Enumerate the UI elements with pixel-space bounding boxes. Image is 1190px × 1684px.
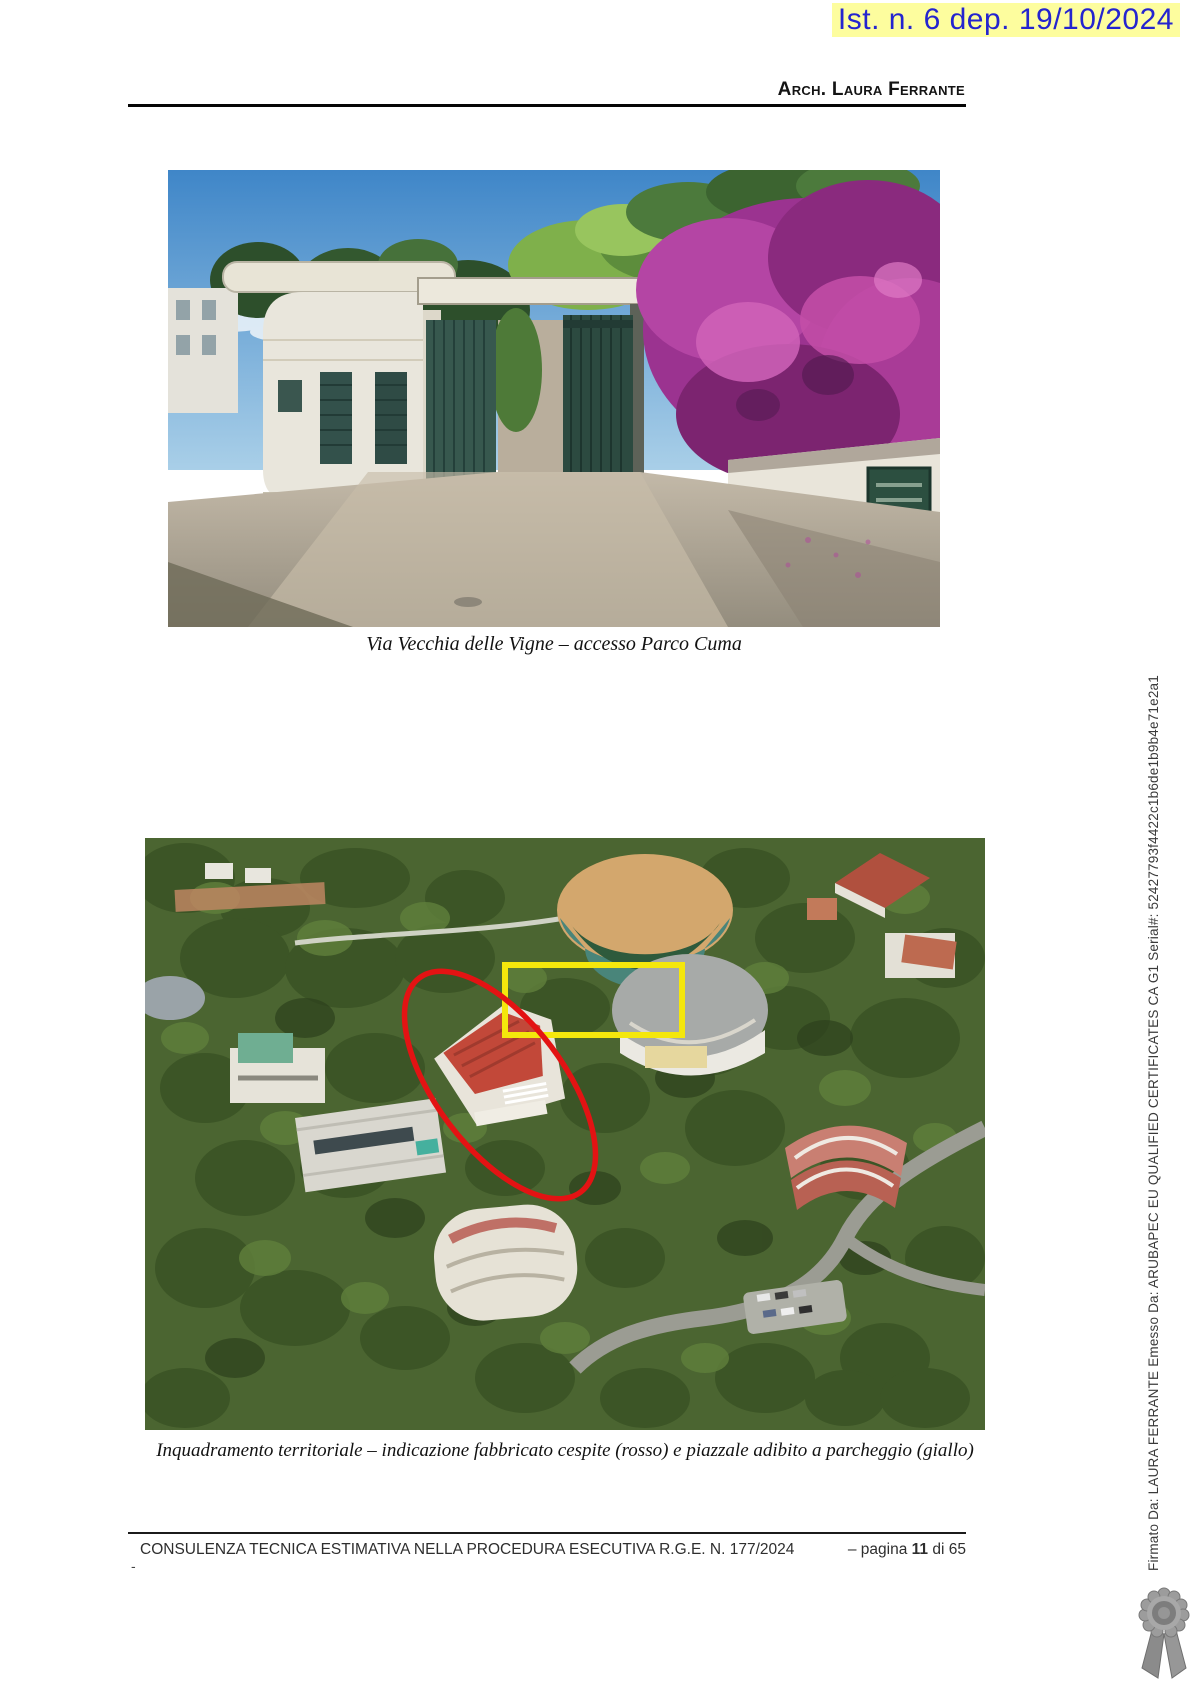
filing-stamp: Ist. n. 6 dep. 19/10/2024 [832, 3, 1180, 37]
certificate-ribbon-icon [1138, 1582, 1190, 1682]
stray-dash: - [131, 1558, 136, 1574]
header-author: Arch. Laura Ferrante [778, 79, 965, 101]
entrance-photo-figure [168, 170, 940, 627]
header-rule [128, 104, 966, 107]
right-edge-cluster [885, 933, 957, 978]
footer-page-number: 11 [912, 1541, 928, 1558]
digital-signature-text: Firmato Da: LAURA FERRANTE Emesso Da: AR… [1146, 655, 1172, 1571]
entrance-photo [168, 170, 940, 627]
figure2-caption: Inquadramento territoriale – indicazione… [115, 1440, 1015, 1462]
footer-page-suffix: di 65 [932, 1541, 966, 1558]
aerial-photo-figure [145, 838, 985, 1430]
aerial-photo [145, 838, 985, 1430]
footer: CONSULENZA TECNICA ESTIMATIVA NELLA PROC… [140, 1541, 966, 1559]
footer-rule [128, 1532, 966, 1534]
neighbor-building-east [612, 954, 768, 1076]
footer-page-prefix: – pagina [848, 1541, 907, 1558]
document-page: Ist. n. 6 dep. 19/10/2024 Arch. Laura Fe… [0, 0, 1190, 1684]
footer-report-title: CONSULENZA TECNICA ESTIMATIVA NELLA PROC… [140, 1541, 794, 1559]
footer-page-indicator: – pagina 11 di 65 [848, 1541, 966, 1559]
figure1-caption: Via Vecchia delle Vigne – accesso Parco … [168, 633, 940, 656]
south-building [430, 1201, 581, 1325]
